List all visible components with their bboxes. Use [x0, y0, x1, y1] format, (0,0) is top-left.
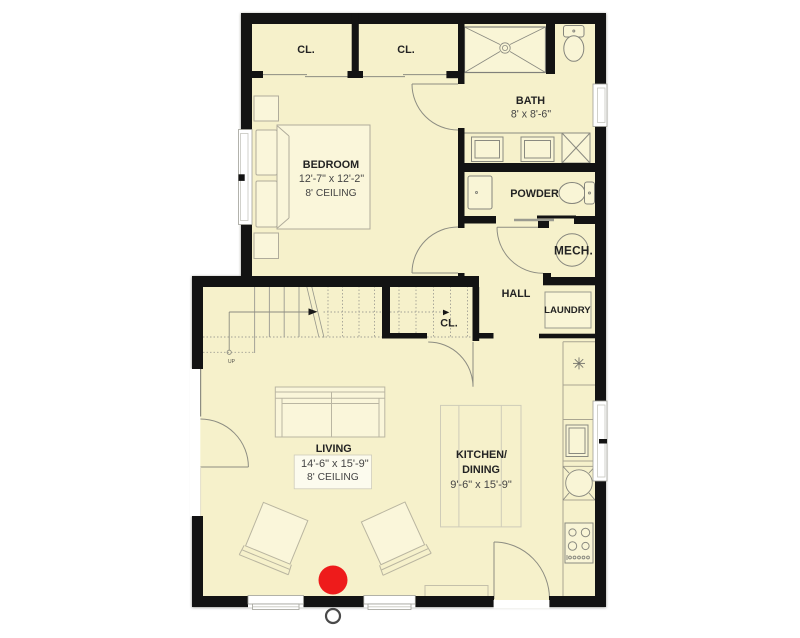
svg-text:LAUNDRY: LAUNDRY — [544, 305, 591, 316]
svg-text:CL.: CL. — [397, 44, 414, 56]
svg-text:HALL: HALL — [502, 288, 531, 300]
svg-text:DINING: DINING — [462, 464, 500, 476]
svg-text:14'-6" x 15'-9": 14'-6" x 15'-9" — [301, 458, 369, 470]
svg-text:KITCHEN/: KITCHEN/ — [456, 449, 507, 461]
svg-text:POWDER: POWDER — [510, 188, 559, 200]
svg-text:8' x 8'-6": 8' x 8'-6" — [511, 109, 551, 121]
svg-text:8' CEILING: 8' CEILING — [307, 472, 359, 483]
svg-text:UP: UP — [228, 359, 236, 365]
svg-text:9'-6" x 15'-9": 9'-6" x 15'-9" — [450, 479, 512, 491]
svg-text:8' CEILING: 8' CEILING — [305, 188, 356, 199]
svg-text:BEDROOM: BEDROOM — [303, 159, 359, 171]
svg-text:12'-7" x 12'-2": 12'-7" x 12'-2" — [299, 173, 364, 185]
svg-text:CL.: CL. — [440, 317, 457, 329]
svg-text:CL.: CL. — [297, 44, 314, 56]
svg-text:LIVING: LIVING — [316, 443, 352, 455]
svg-text:BATH: BATH — [516, 95, 545, 107]
svg-text:MECH.: MECH. — [554, 244, 593, 258]
